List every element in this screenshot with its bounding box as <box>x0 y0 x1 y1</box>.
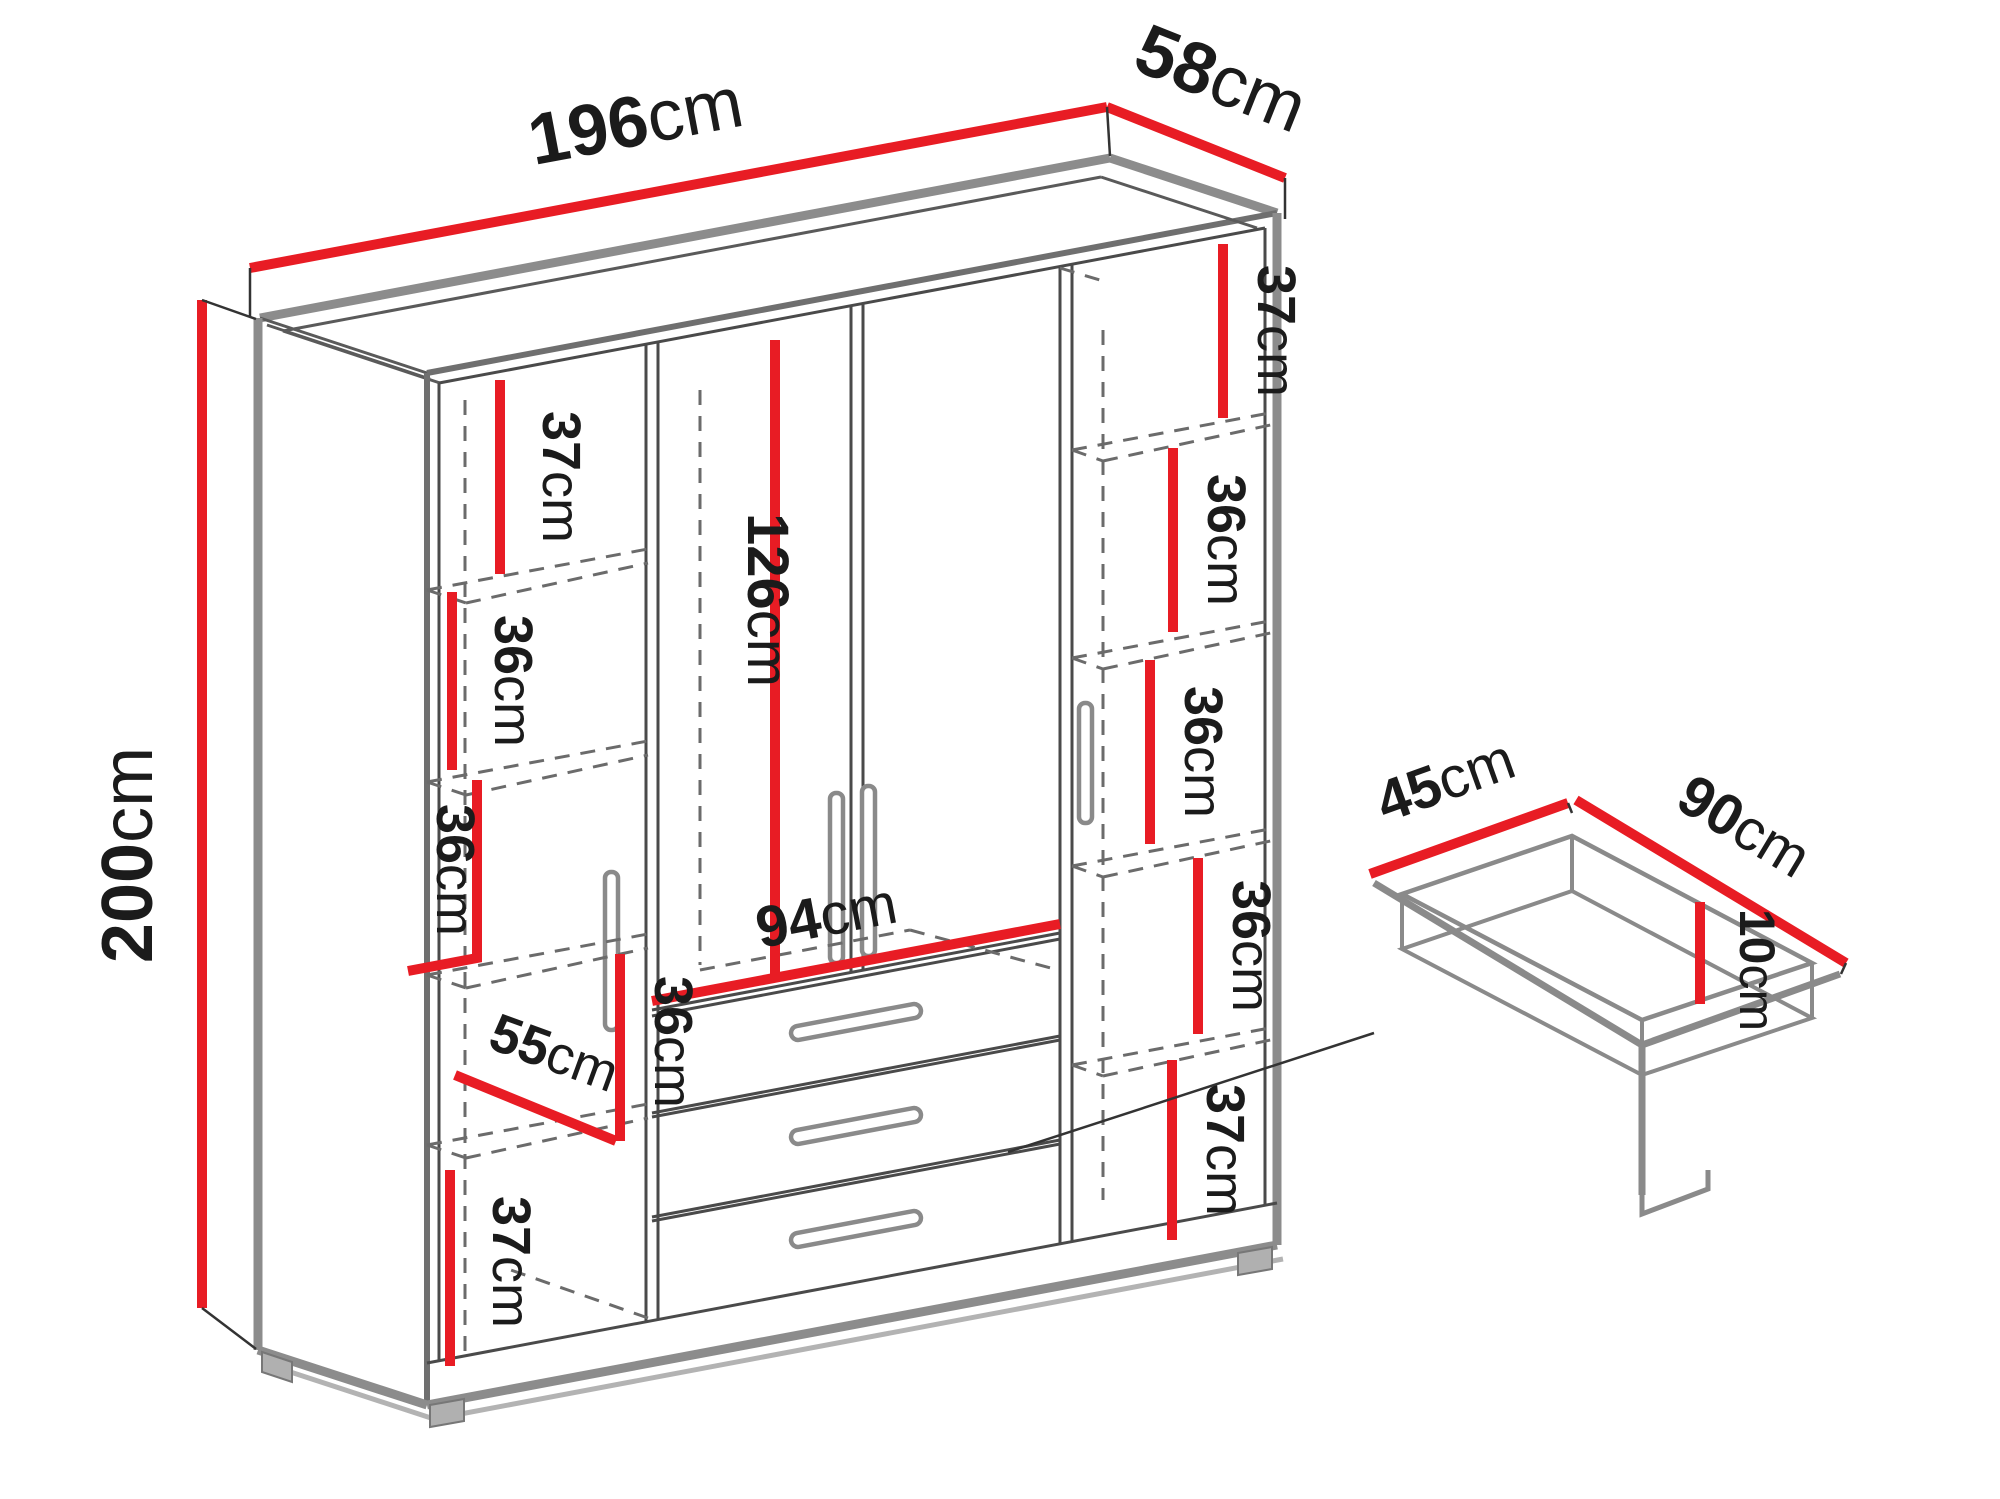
right-section-label-3: 36cm <box>1173 686 1233 818</box>
front-left-foot <box>430 1399 464 1427</box>
left-section-label-3: 36cm <box>425 804 485 936</box>
drawer-height-label: 10cm <box>1729 909 1785 1031</box>
right-section-label-4: 36cm <box>1221 880 1281 1012</box>
width-label: 196cm <box>522 62 749 181</box>
right-section-label-5: 37cm <box>1195 1084 1255 1216</box>
right-section-label-2: 36cm <box>1196 474 1256 606</box>
front-right-foot <box>1238 1247 1272 1275</box>
wardrobe-dimension-diagram: 196cm 58cm 200cm 126cm 94cm 55cm 37cm 36… <box>0 0 2000 1499</box>
dim-tick <box>202 1308 256 1349</box>
left-section-label-2: 36cm <box>483 615 543 747</box>
left-section-label-4: 36cm <box>643 976 703 1108</box>
diagram-canvas: 196cm 58cm 200cm 126cm 94cm 55cm 37cm 36… <box>0 0 2000 1499</box>
left-side-face <box>258 318 427 1405</box>
dim-tick <box>1107 107 1110 156</box>
left-section-label-1: 37cm <box>531 411 591 543</box>
left-section-label-5: 37cm <box>481 1196 541 1328</box>
height-label: 200cm <box>88 747 168 963</box>
hanging-height-label: 126cm <box>735 513 800 687</box>
right-section-label-1: 37cm <box>1246 265 1306 397</box>
right-door-handle <box>1079 703 1092 823</box>
drawer-depth-label: 45cm <box>1368 726 1523 835</box>
dim-tick <box>202 300 256 319</box>
